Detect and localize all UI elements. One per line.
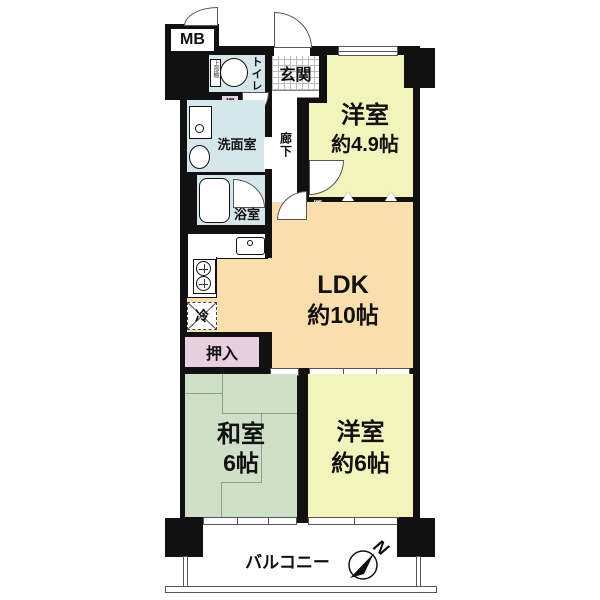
- storage-2-door-mark: [385, 192, 397, 201]
- kitchen-wall-stub: [265, 233, 272, 258]
- mb-door-arc: [184, 7, 218, 26]
- entrance-door-arc: [274, 12, 312, 48]
- toilet-upper-shelf-label: 上部棚: [211, 60, 219, 78]
- western-room-1-name: 洋室: [315, 98, 415, 126]
- western-room-2-name: 洋室: [308, 415, 413, 443]
- balcony-label: バルコニー: [240, 550, 335, 570]
- balcony-window-left: [203, 517, 297, 525]
- bathroom-label: 浴室: [232, 206, 262, 220]
- balcony-rail-left: [183, 556, 188, 588]
- floor-plan: MB 玄関 上部棚 トイレ 棚 洗面室 浴室 廊下 洋室 約4.9帖 棚 物入 …: [0, 0, 600, 600]
- tatami-line: [222, 374, 223, 414]
- toilet-label: トイレ: [249, 57, 263, 91]
- oshiire-closet: 押入: [185, 337, 259, 367]
- tatami-line: [221, 482, 222, 517]
- balcony-window-right: [308, 517, 399, 525]
- corridor-label: 廊下: [279, 127, 293, 163]
- ldk-size: 約10帖: [288, 300, 398, 326]
- western-room-2-size: 約6帖: [308, 448, 413, 474]
- balcony-left-pillar: [165, 518, 203, 557]
- japanese-room-name: 和室: [191, 417, 291, 445]
- washbasin-bowl-icon: [195, 124, 204, 133]
- fridge-label: 冷: [188, 303, 216, 329]
- meter-box-label: MB: [171, 29, 214, 51]
- tatami-line: [221, 482, 262, 483]
- storage-1-door-mark: [342, 192, 354, 201]
- western-room-1-size: 約4.9帖: [315, 130, 415, 154]
- kitchen-faucet-icon: [247, 240, 253, 246]
- washing-machine-icon: [189, 145, 210, 169]
- top-right-pillar: [404, 48, 435, 88]
- balcony-rail-right: [416, 556, 421, 588]
- washbasin: [189, 106, 212, 139]
- compass-icon: N: [341, 530, 403, 592]
- western-room-1-window: [338, 46, 398, 56]
- fridge-space: 冷: [187, 302, 217, 330]
- toilet-bowl: [220, 58, 248, 87]
- tatami-line: [185, 393, 223, 394]
- bathtub: [199, 178, 230, 223]
- stove-burner-icon: [196, 261, 211, 276]
- stove-burner-icon: [196, 276, 211, 291]
- ldk-name: LDK: [293, 271, 393, 299]
- entrance-label: 玄関: [272, 58, 319, 88]
- japanese-room-size: 6帖: [191, 448, 291, 474]
- washroom-label: 洗面室: [214, 135, 260, 151]
